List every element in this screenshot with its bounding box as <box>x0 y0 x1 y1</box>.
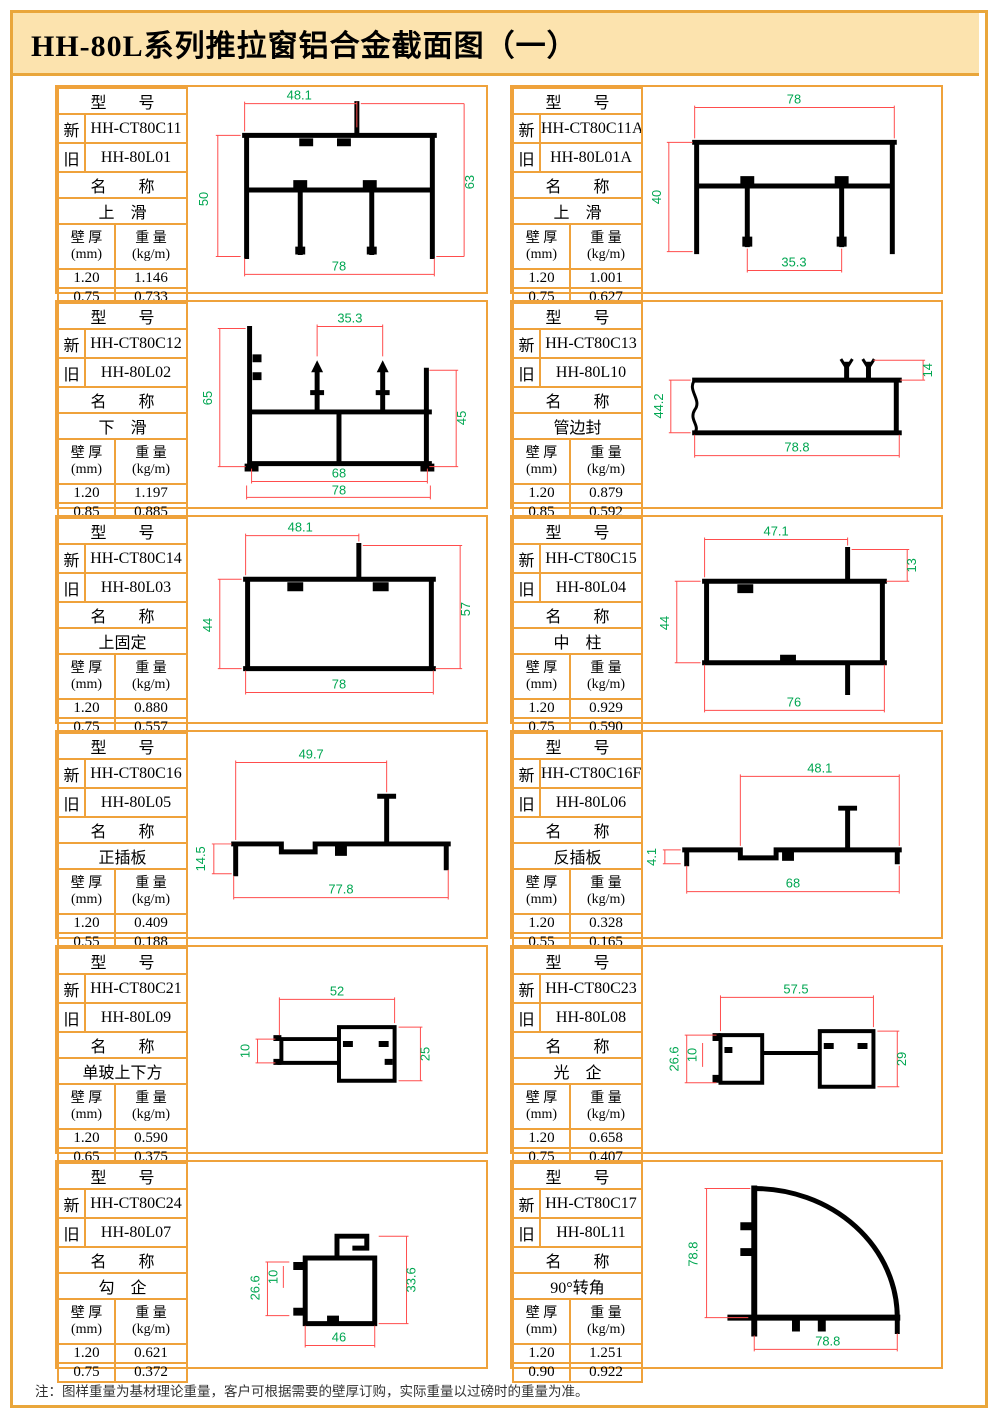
new-label: 新 <box>58 329 85 358</box>
dimension-lines <box>212 761 448 900</box>
old-model-value: HH-80L08 <box>540 1003 642 1032</box>
new-model-value: HH-CT80C14 <box>85 544 187 573</box>
old-label: 旧 <box>513 1003 540 1032</box>
name-header: 名 称 <box>58 172 187 198</box>
new-label: 新 <box>58 974 85 1003</box>
spec-table: 型 号 新 HH-CT80C15 旧 HH-80L04 名 称 中 柱 壁 厚(… <box>512 517 643 738</box>
profile-outline <box>293 1236 374 1323</box>
new-model-value: HH-CT80C15 <box>540 544 642 573</box>
model-header: 型 号 <box>58 88 187 114</box>
new-label: 新 <box>513 974 540 1003</box>
profile-name: 中 柱 <box>513 628 642 654</box>
cross-section-drawing: 48.1 4.1 68 <box>643 732 941 937</box>
cross-section-drawing: 57.5 26.6 10 29 <box>643 947 941 1152</box>
old-label: 旧 <box>513 573 540 602</box>
cross-section-drawing: 44.2 14 78.8 <box>643 302 941 507</box>
dimension-label: 76 <box>787 694 801 709</box>
dimension-label: 35.3 <box>781 254 806 269</box>
thickness-value: 1.20 <box>513 914 570 933</box>
weight-value: 1.146 <box>115 269 187 288</box>
profile-cell: 型 号 新 HH-CT80C16 旧 HH-80L05 名 称 正插板 壁 厚(… <box>55 730 488 939</box>
profile-cell: 型 号 新 HH-CT80C17 旧 HH-80L11 名 称 90°转角 壁 … <box>510 1160 943 1369</box>
thickness-header: 壁 厚(mm) <box>58 1299 115 1344</box>
dimension-label: 49.7 <box>299 747 324 762</box>
dimension-label: 4.1 <box>644 848 659 866</box>
thickness-value: 1.20 <box>58 699 115 718</box>
weight-header: 重 量(kg/m) <box>115 439 187 484</box>
dimension-label: 77.8 <box>328 882 353 897</box>
name-header: 名 称 <box>513 387 642 413</box>
thickness-header: 壁 厚(mm) <box>513 654 570 699</box>
dimension-label: 44 <box>657 616 672 630</box>
dimension-label: 10 <box>265 1270 280 1284</box>
thickness-value: 1.20 <box>513 484 570 503</box>
thickness-header: 壁 厚(mm) <box>513 1084 570 1129</box>
new-label: 新 <box>58 544 85 573</box>
name-header: 名 称 <box>513 602 642 628</box>
dimension-lines <box>667 106 894 273</box>
profile-cell: 型 号 新 HH-CT80C11 旧 HH-80L01 名 称 上 滑 壁 厚(… <box>55 85 488 294</box>
cross-section-drawing: 49.7 14.5 77.8 <box>188 732 486 937</box>
old-label: 旧 <box>513 358 540 387</box>
profile-name: 上 滑 <box>513 198 642 224</box>
dimension-label: 35.3 <box>337 311 362 326</box>
new-label: 新 <box>513 114 540 143</box>
profile-drawing-area: 26.6 10 33.6 46 <box>188 1162 486 1367</box>
cross-section-drawing: 47.1 13 44 76 <box>643 517 941 722</box>
spec-table: 型 号 新 HH-CT80C12 旧 HH-80L02 名 称 下 滑 壁 厚(… <box>57 302 188 523</box>
model-header: 型 号 <box>58 733 187 759</box>
spec-table: 型 号 新 HH-CT80C13 旧 HH-80L10 名 称 管边封 壁 厚(… <box>512 302 643 523</box>
weight-header: 重 量(kg/m) <box>115 224 187 269</box>
profile-drawing-area: 48.1 50 63 78 <box>188 87 486 292</box>
dimension-label: 44 <box>200 618 215 632</box>
profile-outline <box>246 546 434 669</box>
profile-grid: 型 号 新 HH-CT80C11 旧 HH-80L01 名 称 上 滑 壁 厚(… <box>55 85 943 1369</box>
old-model-value: HH-80L11 <box>540 1218 642 1247</box>
cross-section-drawing: 48.1 44 57 78 <box>188 517 486 722</box>
spec-table: 型 号 新 HH-CT80C16 旧 HH-80L05 名 称 正插板 壁 厚(… <box>57 732 188 953</box>
cross-section-drawing: 48.1 50 63 78 <box>188 87 486 292</box>
new-label: 新 <box>513 329 540 358</box>
profile-name: 上固定 <box>58 628 187 654</box>
dimension-label: 29 <box>894 1052 909 1066</box>
new-model-value: HH-CT80C11A <box>540 114 642 143</box>
spec-table: 型 号 新 HH-CT80C11A 旧 HH-80L01A 名 称 上 滑 壁 … <box>512 87 643 308</box>
model-header: 型 号 <box>513 948 642 974</box>
model-header: 型 号 <box>58 303 187 329</box>
new-model-value: HH-CT80C17 <box>540 1189 642 1218</box>
dimension-label: 48.1 <box>288 520 313 535</box>
thickness-header: 壁 厚(mm) <box>58 439 115 484</box>
weight-value: 0.328 <box>570 914 642 933</box>
name-header: 名 称 <box>513 172 642 198</box>
name-header: 名 称 <box>513 817 642 843</box>
profile-outline <box>695 142 895 251</box>
old-label: 旧 <box>58 788 85 817</box>
thickness-header: 壁 厚(mm) <box>513 439 570 484</box>
dimension-label: 65 <box>200 391 215 405</box>
profile-name: 正插板 <box>58 843 187 869</box>
profile-name: 90°转角 <box>513 1273 642 1299</box>
profile-outline <box>234 796 449 873</box>
profile-name: 勾 企 <box>58 1273 187 1299</box>
old-model-value: HH-80L10 <box>540 358 642 387</box>
profile-name: 反插板 <box>513 843 642 869</box>
dimension-lines <box>685 995 900 1086</box>
catalog-page: HH-80L系列推拉窗铝合金截面图（一） 型 号 新 HH-CT80C11 旧 … <box>0 0 1000 1415</box>
profile-cell: 型 号 新 HH-CT80C12 旧 HH-80L02 名 称 下 滑 壁 厚(… <box>55 300 488 509</box>
weight-header: 重 量(kg/m) <box>115 1299 187 1344</box>
old-model-value: HH-80L01 <box>85 143 187 172</box>
weight-value: 1.251 <box>570 1344 642 1363</box>
weight-value: 0.879 <box>570 484 642 503</box>
old-label: 旧 <box>58 143 85 172</box>
name-header: 名 称 <box>58 817 187 843</box>
page-title: HH-80L系列推拉窗铝合金截面图（一） <box>31 21 578 65</box>
profile-cell: 型 号 新 HH-CT80C23 旧 HH-80L08 名 称 光 企 壁 厚(… <box>510 945 943 1154</box>
dimension-label: 46 <box>332 1329 346 1344</box>
profile-drawing-area: 78.8 78.8 <box>643 1162 941 1367</box>
profile-name: 管边封 <box>513 413 642 439</box>
old-model-value: HH-80L01A <box>540 143 642 172</box>
weight-header: 重 量(kg/m) <box>115 1084 187 1129</box>
dimension-label: 33.6 <box>403 1267 418 1292</box>
name-header: 名 称 <box>58 1247 187 1273</box>
cross-section-drawing: 26.6 10 33.6 46 <box>188 1162 486 1367</box>
cross-section-drawing: 35.3 65 45 68 78 <box>188 302 486 507</box>
thickness-value: 1.20 <box>58 914 115 933</box>
name-header: 名 称 <box>513 1247 642 1273</box>
weight-header: 重 量(kg/m) <box>570 1299 642 1344</box>
dimension-label: 40 <box>649 190 664 204</box>
new-model-value: HH-CT80C23 <box>540 974 642 1003</box>
old-label: 旧 <box>513 1218 540 1247</box>
spec-table: 型 号 新 HH-CT80C23 旧 HH-80L08 名 称 光 企 壁 厚(… <box>512 947 643 1168</box>
old-model-value: HH-80L03 <box>85 573 187 602</box>
new-model-value: HH-CT80C12 <box>85 329 187 358</box>
thickness-value: 1.20 <box>58 484 115 503</box>
weight-value: 0.658 <box>570 1129 642 1148</box>
thickness-value: 1.20 <box>513 269 570 288</box>
dimension-label: 26.6 <box>248 1275 263 1300</box>
dimension-label: 68 <box>332 466 346 481</box>
profile-drawing-area: 47.1 13 44 76 <box>643 517 941 722</box>
dimension-label: 52 <box>330 983 344 998</box>
profile-outline <box>705 549 885 692</box>
thickness-value: 1.20 <box>513 1344 570 1363</box>
name-header: 名 称 <box>513 1032 642 1058</box>
weight-header: 重 量(kg/m) <box>570 654 642 699</box>
dimension-label: 13 <box>904 558 919 572</box>
name-header: 名 称 <box>58 387 187 413</box>
new-model-value: HH-CT80C21 <box>85 974 187 1003</box>
dimension-label: 78 <box>332 482 346 497</box>
weight-value: 0.409 <box>115 914 187 933</box>
name-header: 名 称 <box>58 1032 187 1058</box>
profile-cell: 型 号 新 HH-CT80C14 旧 HH-80L03 名 称 上固定 壁 厚(… <box>55 515 488 724</box>
thickness-header: 壁 厚(mm) <box>513 1299 570 1344</box>
cross-section-drawing: 78 40 35.3 <box>643 87 941 292</box>
old-label: 旧 <box>58 1003 85 1032</box>
profile-drawing-area: 52 10 25 <box>188 947 486 1152</box>
footnote: 注：图样重量为基材理论重量，客户可根据需要的壁厚订购，实际重量以过磅时的重量为准… <box>35 1380 589 1400</box>
weight-header: 重 量(kg/m) <box>115 869 187 914</box>
dimension-label: 47.1 <box>764 524 789 539</box>
dimension-label: 63 <box>462 175 477 189</box>
dimension-label: 57 <box>458 602 473 616</box>
profile-outline <box>685 808 900 864</box>
profile-cell: 型 号 新 HH-CT80C24 旧 HH-80L07 名 称 勾 企 壁 厚(… <box>55 1160 488 1369</box>
spec-table: 型 号 新 HH-CT80C14 旧 HH-80L03 名 称 上固定 壁 厚(… <box>57 517 188 738</box>
dimension-label: 25 <box>417 1047 432 1061</box>
thickness-value: 1.20 <box>58 269 115 288</box>
dimension-label: 14 <box>920 363 935 377</box>
new-model-value: HH-CT80C13 <box>540 329 642 358</box>
old-model-value: HH-80L04 <box>540 573 642 602</box>
thickness-value: 1.20 <box>513 699 570 718</box>
weight-header: 重 量(kg/m) <box>570 224 642 269</box>
profile-cell: 型 号 新 HH-CT80C16F 旧 HH-80L06 名 称 反插板 壁 厚… <box>510 730 943 939</box>
old-label: 旧 <box>58 573 85 602</box>
model-header: 型 号 <box>513 733 642 759</box>
weight-value: 0.621 <box>115 1344 187 1363</box>
profile-drawing-area: 78 40 35.3 <box>643 87 941 292</box>
profile-cell: 型 号 新 HH-CT80C13 旧 HH-80L10 名 称 管边封 壁 厚(… <box>510 300 943 509</box>
dimension-label: 78.8 <box>686 1242 701 1267</box>
weight-value: 1.001 <box>570 269 642 288</box>
thickness-value: 1.20 <box>513 1129 570 1148</box>
spec-table: 型 号 新 HH-CT80C17 旧 HH-80L11 名 称 90°转角 壁 … <box>512 1162 643 1383</box>
dimension-lines <box>675 538 909 713</box>
old-model-value: HH-80L06 <box>540 788 642 817</box>
model-header: 型 号 <box>58 1163 187 1189</box>
dimension-label: 45 <box>454 411 469 425</box>
profile-drawing-area: 48.1 44 57 78 <box>188 517 486 722</box>
thickness-header: 壁 厚(mm) <box>58 224 115 269</box>
profile-cell: 型 号 新 HH-CT80C15 旧 HH-80L04 名 称 中 柱 壁 厚(… <box>510 515 943 724</box>
weight-header: 重 量(kg/m) <box>570 869 642 914</box>
dimension-label: 26.6 <box>667 1046 682 1071</box>
profile-drawing-area: 44.2 14 78.8 <box>643 302 941 507</box>
profile-name: 下 滑 <box>58 413 187 439</box>
old-label: 旧 <box>513 788 540 817</box>
profile-outline <box>692 360 899 433</box>
dimension-label: 14.5 <box>193 846 208 871</box>
spec-table: 型 号 新 HH-CT80C11 旧 HH-80L01 名 称 上 滑 壁 厚(… <box>57 87 188 308</box>
weight-header: 重 量(kg/m) <box>115 654 187 699</box>
old-label: 旧 <box>58 358 85 387</box>
profile-cell: 型 号 新 HH-CT80C11A 旧 HH-80L01A 名 称 上 滑 壁 … <box>510 85 943 294</box>
thickness-header: 壁 厚(mm) <box>513 224 570 269</box>
profile-cell: 型 号 新 HH-CT80C21 旧 HH-80L09 名 称 单玻上下方 壁 … <box>55 945 488 1154</box>
new-model-value: HH-CT80C11 <box>85 114 187 143</box>
model-header: 型 号 <box>513 303 642 329</box>
old-label: 旧 <box>58 1218 85 1247</box>
profile-outline <box>245 329 435 472</box>
dimension-label: 78 <box>332 258 346 273</box>
thickness-value: 1.20 <box>58 1129 115 1148</box>
cross-section-drawing: 78.8 78.8 <box>643 1162 941 1367</box>
profile-name: 光 企 <box>513 1058 642 1084</box>
spec-table: 型 号 新 HH-CT80C21 旧 HH-80L09 名 称 单玻上下方 壁 … <box>57 947 188 1168</box>
model-header: 型 号 <box>513 518 642 544</box>
model-header: 型 号 <box>58 948 187 974</box>
model-header: 型 号 <box>513 1163 642 1189</box>
profile-drawing-area: 49.7 14.5 77.8 <box>188 732 486 937</box>
dimension-label: 44.2 <box>651 393 666 418</box>
new-model-value: HH-CT80C16 <box>85 759 187 788</box>
thickness-value: 1.20 <box>58 1344 115 1363</box>
dimension-label: 48.1 <box>287 88 312 103</box>
profile-outline <box>273 1027 394 1081</box>
old-model-value: HH-80L05 <box>85 788 187 817</box>
profile-drawing-area: 57.5 26.6 10 29 <box>643 947 941 1152</box>
profile-drawing-area: 35.3 65 45 68 78 <box>188 302 486 507</box>
new-label: 新 <box>513 759 540 788</box>
new-label: 新 <box>58 759 85 788</box>
profile-drawing-area: 48.1 4.1 68 <box>643 732 941 937</box>
weight-value: 0.929 <box>570 699 642 718</box>
profile-outline <box>730 1189 897 1334</box>
thickness-header: 壁 厚(mm) <box>513 869 570 914</box>
profile-outline <box>713 1031 874 1087</box>
weight-value: 1.197 <box>115 484 187 503</box>
old-model-value: HH-80L07 <box>85 1218 187 1247</box>
dimension-label: 57.5 <box>783 981 808 996</box>
dimension-label: 78 <box>332 677 346 692</box>
thickness-header: 壁 厚(mm) <box>58 654 115 699</box>
profile-name: 单玻上下方 <box>58 1058 187 1084</box>
dimension-lines <box>663 774 899 893</box>
model-header: 型 号 <box>58 518 187 544</box>
dimension-label: 10 <box>238 1044 253 1058</box>
old-model-value: HH-80L02 <box>85 358 187 387</box>
dimension-label: 48.1 <box>807 760 832 775</box>
thickness-header: 壁 厚(mm) <box>58 1084 115 1129</box>
new-label: 新 <box>58 1189 85 1218</box>
title-band: HH-80L系列推拉窗铝合金截面图（一） <box>13 13 979 76</box>
spec-table: 型 号 新 HH-CT80C24 旧 HH-80L07 名 称 勾 企 壁 厚(… <box>57 1162 188 1383</box>
model-header: 型 号 <box>513 88 642 114</box>
new-label: 新 <box>513 544 540 573</box>
dimension-label: 78 <box>787 92 801 107</box>
new-label: 新 <box>513 1189 540 1218</box>
weight-header: 重 量(kg/m) <box>570 1084 642 1129</box>
old-label: 旧 <box>513 143 540 172</box>
dimension-label: 78.8 <box>784 440 809 455</box>
new-model-value: HH-CT80C24 <box>85 1189 187 1218</box>
spec-table: 型 号 新 HH-CT80C16F 旧 HH-80L06 名 称 反插板 壁 厚… <box>512 732 643 953</box>
dimension-label: 10 <box>685 1048 700 1062</box>
weight-value: 0.590 <box>115 1129 187 1148</box>
dimension-lines <box>705 1189 898 1352</box>
dimension-label: 78.8 <box>815 1333 840 1348</box>
weight-value: 0.880 <box>115 699 187 718</box>
cross-section-drawing: 52 10 25 <box>188 947 486 1152</box>
dimension-label: 68 <box>786 876 800 891</box>
old-model-value: HH-80L09 <box>85 1003 187 1032</box>
dimension-label: 50 <box>196 192 211 206</box>
name-header: 名 称 <box>58 602 187 628</box>
new-label: 新 <box>58 114 85 143</box>
thickness-header: 壁 厚(mm) <box>58 869 115 914</box>
profile-outline <box>245 104 435 257</box>
weight-header: 重 量(kg/m) <box>570 439 642 484</box>
profile-name: 上 滑 <box>58 198 187 224</box>
new-model-value: HH-CT80C16F <box>540 759 642 788</box>
